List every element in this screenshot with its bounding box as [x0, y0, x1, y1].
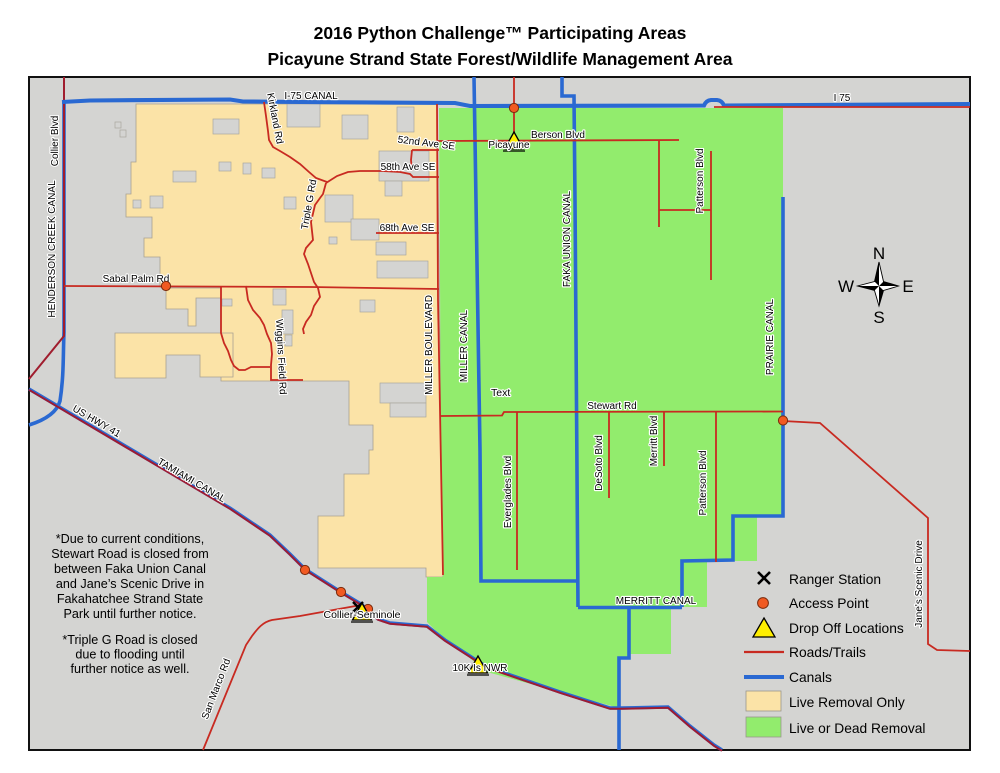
svg-text:Stewart Rd: Stewart Rd — [587, 401, 636, 412]
svg-text:HENDERSON CREEK CANAL: HENDERSON CREEK CANAL — [47, 180, 58, 318]
svg-text:*Due to current conditions,: *Due to current conditions, — [56, 532, 204, 546]
svg-text:due to flooding until: due to flooding until — [75, 648, 184, 662]
svg-text:58th Ave SE: 58th Ave SE — [381, 162, 436, 173]
svg-text:Picayune Strand State Forest/W: Picayune Strand State Forest/Wildlife Ma… — [267, 49, 732, 69]
svg-text:and Jane’s Scenic Drive in: and Jane’s Scenic Drive in — [56, 577, 204, 591]
svg-text:Fakahatchee Strand State: Fakahatchee Strand State — [57, 592, 203, 606]
svg-text:I 75: I 75 — [834, 93, 851, 104]
svg-text:Live or Dead Removal: Live or Dead Removal — [789, 721, 926, 736]
svg-text:Collier-Seminole: Collier-Seminole — [323, 609, 400, 621]
svg-text:Patterson Blvd: Patterson Blvd — [695, 148, 706, 213]
svg-text:Text: Text — [491, 387, 510, 399]
svg-text:PRAIRIE CANAL: PRAIRIE CANAL — [765, 298, 776, 375]
svg-text:Picayune: Picayune — [488, 140, 530, 151]
svg-text:Patterson Blvd: Patterson Blvd — [698, 450, 709, 515]
svg-text:W: W — [838, 277, 854, 296]
svg-text:Merritt Blvd: Merritt Blvd — [649, 416, 660, 467]
svg-text:between Faka Union Canal: between Faka Union Canal — [54, 562, 206, 576]
svg-text:Roads/Trails: Roads/Trails — [789, 645, 866, 660]
svg-text:Jane's Scenic Drive: Jane's Scenic Drive — [914, 540, 925, 628]
svg-text:further notice as well.: further notice as well. — [71, 662, 190, 676]
svg-text:N: N — [873, 244, 885, 263]
svg-text:Berson Blvd: Berson Blvd — [531, 130, 585, 141]
svg-text:Park until further notice.: Park until further notice. — [64, 607, 197, 621]
svg-text:Everglades Blvd: Everglades Blvd — [503, 456, 514, 528]
svg-text:Access Point: Access Point — [789, 596, 869, 611]
svg-text:S: S — [873, 308, 884, 327]
svg-text:I-75 CANAL: I-75 CANAL — [284, 91, 338, 102]
svg-text:10K Is NWR: 10K Is NWR — [452, 663, 507, 674]
svg-text:Ranger Station: Ranger Station — [789, 572, 881, 587]
svg-text:Collier Blvd: Collier Blvd — [50, 116, 61, 167]
svg-text:MILLER BOULEVARD: MILLER BOULEVARD — [424, 295, 435, 395]
svg-text:MILLER CANAL: MILLER CANAL — [459, 309, 470, 382]
svg-text:FAKA UNION CANAL: FAKA UNION CANAL — [562, 190, 573, 287]
svg-text:Drop Off Locations: Drop Off Locations — [789, 621, 904, 636]
svg-text:E: E — [902, 277, 913, 296]
svg-text:MERRITT CANAL: MERRITT CANAL — [616, 596, 697, 607]
svg-text:68th Ave SE: 68th Ave SE — [380, 223, 435, 234]
svg-text:Sabal Palm Rd: Sabal Palm Rd — [103, 274, 170, 285]
svg-text:2016 Python Challenge™ Partici: 2016 Python Challenge™ Participating Are… — [314, 23, 687, 43]
svg-text:*Triple G Road is closed: *Triple G Road is closed — [62, 633, 197, 647]
svg-text:Canals: Canals — [789, 670, 832, 685]
svg-text:Live Removal Only: Live Removal Only — [789, 695, 905, 710]
svg-text:Stewart Road is closed from: Stewart Road is closed from — [51, 547, 208, 561]
svg-text:DeSoto Blvd: DeSoto Blvd — [594, 435, 605, 491]
